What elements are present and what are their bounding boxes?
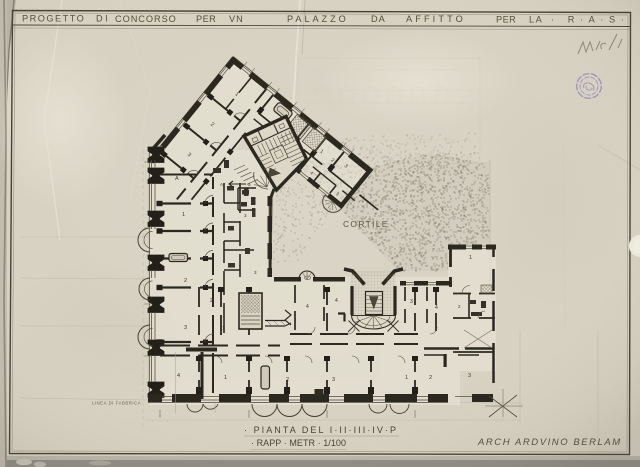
svg-text:2: 2 [286, 377, 289, 383]
svg-text:4: 4 [177, 373, 180, 379]
svg-text:4: 4 [306, 304, 309, 310]
svg-text:3: 3 [184, 325, 187, 331]
svg-text:1: 1 [182, 212, 185, 218]
svg-text:3: 3 [410, 299, 413, 305]
svg-text:LINEA DI FABBRICA: LINEA DI FABBRICA [92, 401, 141, 406]
svg-text:CORTILE: CORTILE [343, 219, 390, 229]
svg-text:ARCH ARDVINO BERLAM: ARCH ARDVINO BERLAM [477, 437, 621, 448]
svg-text:1: 1 [405, 375, 408, 381]
svg-text:1: 1 [224, 375, 227, 381]
svg-text:A: A [175, 176, 179, 182]
svg-text:2: 2 [210, 298, 213, 304]
svg-text:· RAPP · METR · 1/100: · RAPP · METR · 1/100 [251, 438, 347, 448]
svg-text:1: 1 [469, 255, 472, 261]
svg-text:A: A [220, 182, 223, 187]
svg-text:· PIANTA DEL I·II·III·IV·P: · PIANTA DEL I·II·III·IV·P [244, 425, 397, 435]
svg-text:2: 2 [184, 278, 187, 284]
svg-text:3: 3 [332, 377, 335, 383]
svg-text:4: 4 [335, 298, 338, 304]
svg-text:2: 2 [429, 375, 432, 381]
svg-text:1: 1 [222, 326, 225, 332]
svg-text:4: 4 [435, 305, 438, 311]
svg-text:3: 3 [468, 373, 471, 379]
